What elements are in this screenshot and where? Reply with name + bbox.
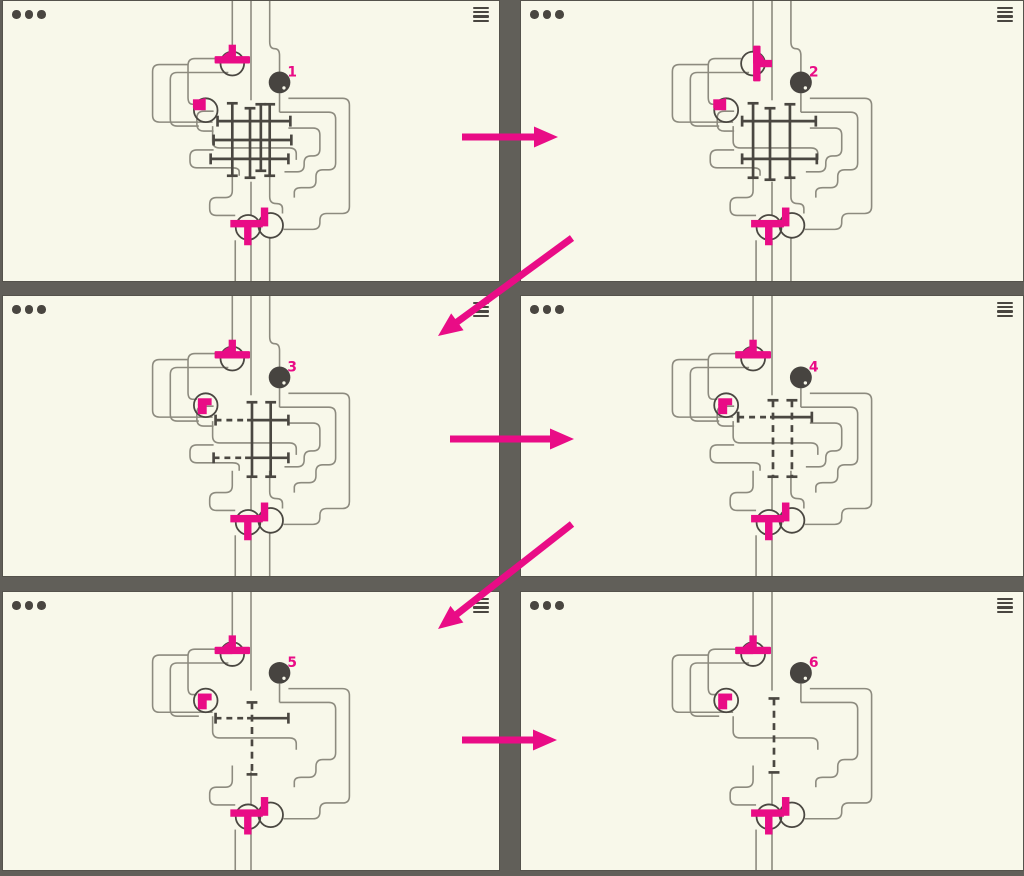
bottom-node-marker	[230, 208, 268, 246]
puzzle-window-4: 4	[520, 295, 1024, 577]
top-node-marker	[735, 635, 771, 654]
ball-sparkle-icon	[282, 381, 285, 384]
puzzle-diagram-2: 2	[521, 1, 1023, 281]
three-dots-icon	[12, 601, 46, 610]
puzzle-diagram-1: 1	[3, 1, 499, 281]
window-dot	[37, 10, 46, 19]
window-dot	[37, 601, 46, 610]
bottom-node-marker	[751, 503, 789, 541]
hamburger-menu-icon[interactable]	[997, 598, 1013, 613]
window-dot	[543, 305, 552, 314]
three-dots-icon	[530, 601, 564, 610]
ball-sparkle-icon	[804, 381, 807, 384]
left-node-marker	[193, 98, 206, 110]
step-number-label: 5	[287, 655, 297, 671]
window-dot	[25, 601, 34, 610]
ball-sparkle-icon	[804, 677, 807, 680]
window-dot	[25, 10, 34, 19]
ball-sparkle-icon	[804, 86, 807, 89]
puzzle-window-2: 2	[520, 0, 1024, 282]
hamburger-menu-icon[interactable]	[473, 7, 489, 22]
hamburger-menu-icon[interactable]	[473, 302, 489, 317]
window-dot	[530, 10, 539, 19]
window-dot	[543, 601, 552, 610]
top-node-marker	[215, 340, 250, 359]
hamburger-menu-icon[interactable]	[997, 302, 1013, 317]
hash-lines	[769, 698, 780, 772]
top-node-marker	[215, 45, 250, 64]
bottom-node-marker	[230, 503, 268, 541]
left-node-marker	[718, 694, 732, 710]
ball-sparkle-icon	[282, 677, 285, 680]
window-dot	[25, 305, 34, 314]
window-dot	[555, 10, 564, 19]
hamburger-menu-icon[interactable]	[473, 598, 489, 613]
bottom-node-marker	[751, 797, 789, 834]
puzzle-diagram-5: 5	[3, 592, 499, 870]
three-dots-icon	[12, 10, 46, 19]
bottom-node-marker	[230, 797, 268, 834]
puzzle-window-3: 3	[2, 295, 500, 577]
ball-sparkle-icon	[282, 86, 285, 89]
puzzle-diagram-6: 6	[521, 592, 1023, 870]
step-number-label: 2	[809, 64, 819, 80]
puzzle-diagram-4: 4	[521, 296, 1023, 576]
hash-lines	[742, 103, 817, 179]
left-node-marker	[198, 694, 212, 710]
hash-lines	[211, 103, 292, 177]
puzzle-diagram-3: 3	[3, 296, 499, 576]
puzzle-window-1: 1	[2, 0, 500, 282]
three-dots-icon	[12, 305, 46, 314]
window-dot	[12, 10, 21, 19]
three-dots-icon	[530, 305, 564, 314]
window-dot	[37, 305, 46, 314]
window-dot	[530, 601, 539, 610]
window-dot	[12, 601, 21, 610]
window-dot	[530, 305, 539, 314]
window-dot	[543, 10, 552, 19]
step-number-label: 6	[809, 655, 819, 671]
hamburger-menu-icon[interactable]	[997, 7, 1013, 22]
puzzle-window-6: 6	[520, 591, 1024, 871]
top-node-marker	[735, 340, 771, 359]
top-node-marker	[215, 635, 250, 654]
puzzle-window-5: 5	[2, 591, 500, 871]
top-node-marker	[753, 46, 772, 82]
three-dots-icon	[530, 10, 564, 19]
window-dot	[12, 305, 21, 314]
six-step-puzzle-sequence: 1 2 3 4 5 6	[0, 0, 1024, 876]
bottom-node-marker	[751, 208, 789, 246]
hash-lines	[738, 400, 812, 476]
left-node-marker	[713, 98, 726, 110]
hash-lines	[214, 402, 289, 476]
window-dot	[555, 305, 564, 314]
step-number-label: 1	[287, 64, 297, 80]
window-dot	[555, 601, 564, 610]
step-number-label: 3	[287, 359, 297, 375]
step-number-label: 4	[809, 359, 819, 375]
